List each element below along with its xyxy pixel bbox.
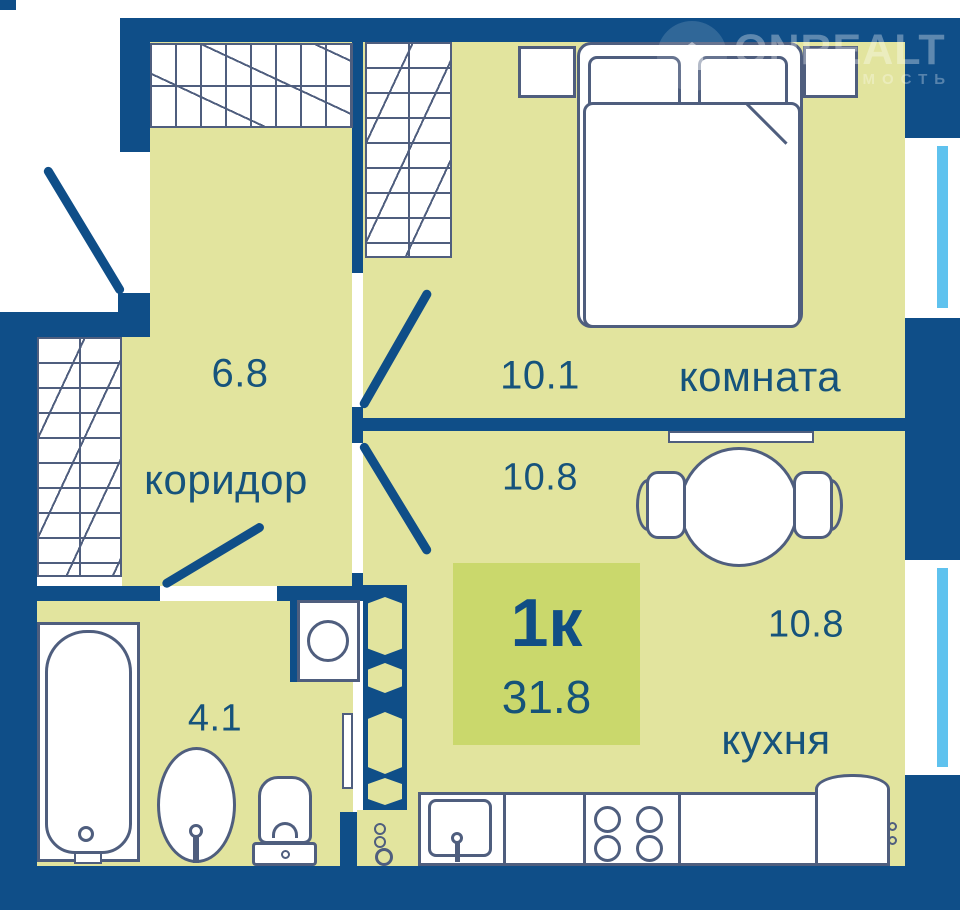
wall-top-left-corner — [0, 0, 16, 10]
toilet-tank-button — [281, 850, 290, 859]
stove-burner — [594, 835, 621, 862]
bedroom-door-opening — [352, 273, 363, 407]
entrance-door-swing — [42, 165, 126, 296]
wall-bottom — [0, 866, 960, 910]
hall-area-label: 6.8 — [211, 352, 268, 397]
wall-bath-corner-block — [340, 812, 357, 866]
nightstand-left — [518, 46, 576, 98]
kitchen-window-glass — [937, 568, 948, 767]
kitchen-sink — [428, 799, 492, 857]
hall-left-wardrobe — [37, 337, 122, 577]
floor-plan: 1к 31.8 6.8 коридор 10.1 комната 10.8 10… — [0, 0, 960, 910]
blanket — [583, 102, 801, 328]
sink-faucet-stem — [455, 842, 460, 862]
bathtub-drain — [78, 826, 94, 842]
wall-entry-stub — [118, 293, 150, 313]
wall-washer-partition — [290, 593, 297, 682]
kitchen-area-label-top: 10.8 — [502, 457, 578, 500]
chair-left — [646, 471, 686, 539]
console-table — [668, 431, 814, 443]
washing-machine-drum — [307, 620, 349, 662]
wall-riser-dot — [888, 836, 897, 845]
wall-left — [0, 337, 37, 866]
entrance-opening — [120, 152, 150, 293]
wall-bedroom-kitchen — [358, 418, 905, 431]
apartment-type-label: 1к — [511, 584, 583, 662]
chair-right — [793, 471, 833, 539]
vent-shaft-cell — [368, 712, 402, 774]
hall-name-label: коридор — [144, 456, 308, 504]
kitchen-window — [905, 560, 960, 775]
bedroom-name-label: комната — [679, 353, 841, 401]
bedroom-window — [905, 138, 960, 318]
kitchen-area-label-bottom: 10.8 — [768, 604, 844, 647]
apartment-total-area: 31.8 — [502, 670, 592, 724]
blanket-fold-line — [746, 103, 788, 145]
fridge — [815, 774, 890, 866]
bathtub-step — [74, 852, 102, 864]
wall-bottom-stub — [352, 573, 363, 601]
kitchen-door-opening — [352, 443, 363, 573]
bathroom-area-label: 4.1 — [188, 698, 242, 741]
wall-riser-dot — [888, 822, 897, 831]
stove-burner — [594, 806, 621, 833]
counter-divider — [503, 795, 506, 863]
bedroom-area-label: 10.1 — [500, 354, 580, 399]
bathroom-door-opening — [160, 586, 277, 601]
hall-tall-closet — [365, 42, 452, 258]
washbasin-faucet-knob — [189, 824, 203, 838]
wall-left-horizontal — [0, 312, 150, 337]
bedroom-window-glass — [937, 146, 948, 308]
stove-burner — [636, 835, 663, 862]
watermark-tagline: НЕДВИЖИМОСТЬ — [736, 71, 952, 88]
wall-bath-top-left — [0, 586, 160, 601]
bathtub-inner — [45, 630, 132, 854]
apartment-badge: 1к 31.8 — [453, 563, 640, 745]
wall-bath-top-right — [277, 586, 353, 601]
vent-shaft-cell — [368, 597, 402, 655]
stove-burner — [636, 806, 663, 833]
counter-divider — [583, 795, 586, 863]
dining-table — [679, 447, 799, 567]
wall-left-upper — [120, 18, 150, 152]
washbasin-faucet-stem — [193, 837, 199, 863]
wall-hall-bedroom — [352, 42, 363, 273]
watermark-brand: ONREALT — [734, 26, 946, 75]
plumbing-riser-dot — [374, 836, 386, 848]
hall-top-wardrobe — [150, 43, 353, 128]
plumbing-riser-dot — [374, 823, 386, 835]
kitchen-name-label: кухня — [721, 716, 830, 764]
counter-divider — [678, 795, 681, 863]
door-leaf-panel — [342, 713, 353, 789]
plumbing-riser-pipe — [375, 848, 393, 866]
